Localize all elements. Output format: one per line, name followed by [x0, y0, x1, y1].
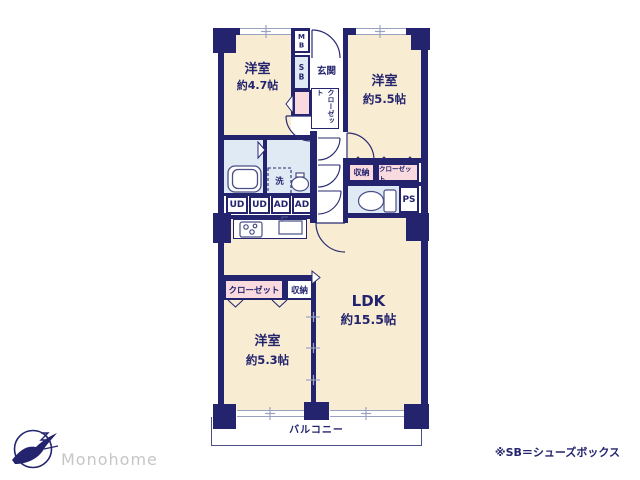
door-arc-entrance — [312, 30, 340, 58]
balcony-label: バルコニー — [211, 424, 422, 437]
bird-logo-icon — [12, 431, 58, 468]
bedroom-ne-size: 約5.5帖 — [348, 92, 421, 107]
door-mark-bathroom — [258, 142, 265, 158]
ldk-name: LDK — [316, 292, 421, 312]
door-arc-corridor — [318, 138, 341, 214]
laundry-label: 洗 — [268, 177, 291, 188]
shoe-box-note: ※SB＝シューズボックス — [462, 446, 620, 460]
door-arc-ldk — [316, 223, 345, 252]
brand-name: Monohome — [61, 450, 158, 469]
ldk-size: 約15.5帖 — [316, 312, 421, 328]
door-arc-bedroom-ne — [347, 133, 374, 160]
bedroom-sw-name: 洋室 — [224, 334, 311, 351]
door-arc-bedroom-nw — [286, 116, 311, 141]
entrance-label: 玄関 — [310, 66, 343, 78]
door-mark-closet-nw — [286, 95, 293, 113]
bedroom-sw-size: 約5.3帖 — [224, 353, 311, 368]
bathtub-icon — [228, 166, 261, 192]
bedroom-nw-size: 約4.7帖 — [224, 79, 291, 93]
bedroom-ne-name: 洋室 — [348, 74, 421, 91]
floorplan-canvas: MB SB クローゼット 収納 クローゼット PS UD UD AD AD クロ… — [0, 0, 640, 480]
bedroom-nw-name: 洋室 — [224, 62, 291, 79]
stove-icon — [240, 222, 262, 237]
washbasin-icon — [292, 173, 309, 191]
toilet-icon — [359, 190, 397, 212]
door-mark-bedroom-sw — [312, 271, 320, 284]
kitchen-sink-icon — [279, 217, 302, 234]
